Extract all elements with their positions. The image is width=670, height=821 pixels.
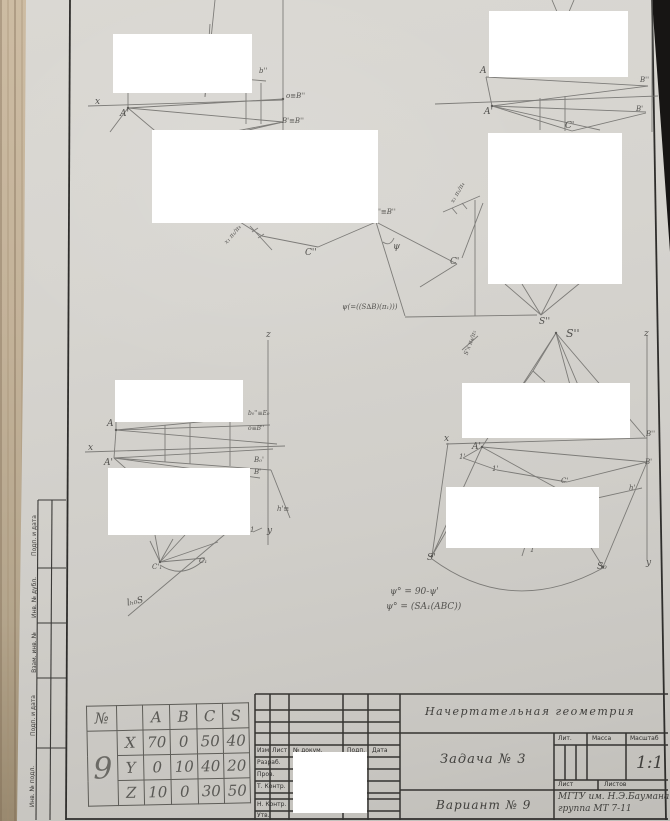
drawing-label: S' xyxy=(427,554,436,563)
table-value-cell: 50 xyxy=(197,728,224,754)
drawing-label: o≡B'' xyxy=(248,426,264,432)
drawing-label: C₁ xyxy=(199,558,207,565)
drawing-label: C' xyxy=(450,258,459,267)
organization-line1: МГТУ им. Н.Э.Баумана xyxy=(558,793,669,802)
table-axis-cell: X xyxy=(117,730,144,756)
drawing-label: 1' xyxy=(459,454,465,461)
stamp-column-grid xyxy=(36,500,66,820)
redaction-box xyxy=(108,468,250,535)
table-value-cell: 0 xyxy=(144,754,172,780)
stamp-cell-label: Инв. № дубл. xyxy=(31,577,38,618)
listov-header: Листов xyxy=(604,782,626,788)
axis-label: x xyxy=(444,435,449,444)
drawing-label: C'₁ xyxy=(152,564,162,571)
drawing-label: S₀ xyxy=(597,563,607,572)
drawing-label: 1' xyxy=(492,466,498,473)
table-number-header: № xyxy=(86,706,117,732)
drawing-label: B' xyxy=(636,106,643,113)
masshtab-header: Масштаб xyxy=(630,736,659,742)
task-title: Задача № 3 xyxy=(440,753,527,766)
stamp-cell-label: Подп. и дата xyxy=(30,695,37,736)
drawing-label: x xyxy=(95,98,100,107)
organization-line2: группа МТ 7-11 xyxy=(558,805,632,814)
redaction-box xyxy=(293,752,367,813)
drawing-label: A' xyxy=(120,110,129,119)
drawing-label: C' xyxy=(561,478,568,485)
drawing-label: B'' xyxy=(640,77,649,84)
drawing-label: A' xyxy=(472,443,481,452)
drawing-label: B' xyxy=(645,459,652,466)
lit-header: Лит. xyxy=(558,736,572,742)
drawing-label: h'≡ xyxy=(277,506,289,513)
scale-value: 1:1 xyxy=(636,755,663,772)
photo-scene: x A' b'' o≡B'' B'≡B'' x₁ π₁/π₄ C'' A''≡B… xyxy=(0,0,670,821)
axis-label: y xyxy=(267,527,272,536)
title-block-razrab: Разраб. xyxy=(257,760,281,766)
angle-label: ψ xyxy=(393,243,400,252)
stamp-cell-label: Инв. № подл. xyxy=(29,766,36,807)
table-value-cell: 40 xyxy=(197,753,224,779)
table-col-header: B xyxy=(169,704,197,730)
variant-number-cell: 9 xyxy=(87,731,119,807)
title-block-col-list: Лист xyxy=(272,748,287,754)
drawing-label: B'' xyxy=(646,431,655,438)
table-value-cell: 0 xyxy=(171,779,199,805)
drawing-label: B'≡B'' xyxy=(282,118,304,125)
redaction-box xyxy=(489,11,628,77)
table-col-header: A xyxy=(142,704,170,730)
drawing-label: C'' xyxy=(305,249,317,258)
coordinate-table: № A B C S 9 X 70 0 50 40 Y 0 10 40 20 Z … xyxy=(86,702,251,806)
redaction-box xyxy=(113,34,252,93)
redaction-box xyxy=(152,130,378,223)
drawing-label: A' xyxy=(104,459,113,468)
drawing-label: A xyxy=(107,420,114,429)
drawing-label: B' xyxy=(254,469,261,476)
formula: ψ° = (SA₁(ABC)) xyxy=(386,603,461,612)
table-value-cell: 10 xyxy=(144,779,172,805)
redaction-box xyxy=(115,380,243,422)
drawing-label: A' xyxy=(484,108,493,117)
axis-label: y xyxy=(646,559,651,568)
table-axis-cell: Y xyxy=(118,755,145,781)
subject-title: Начертательная геометрия xyxy=(425,706,635,717)
drawing-label: B₀' xyxy=(254,457,264,464)
drawing-label: 1 xyxy=(530,547,534,554)
massa-header: Масса xyxy=(592,736,611,742)
title-block-tkontr: Т. Контр. xyxy=(257,784,286,790)
drawing-label: b₀''≡E₀ xyxy=(248,411,269,417)
axis-label: x xyxy=(88,444,93,453)
axis-label: z xyxy=(644,330,649,339)
table-col-header: S xyxy=(222,703,249,729)
table-value-cell: 70 xyxy=(143,729,171,755)
drawing-label: S'' xyxy=(566,328,580,339)
title-block-utv: Утв. xyxy=(257,813,270,819)
table-value-cell: 50 xyxy=(224,778,251,804)
drawing-label: A xyxy=(480,67,487,76)
table-blank-header xyxy=(116,705,143,731)
table-value-cell: 20 xyxy=(223,753,250,779)
stamp-cell-label: Взам. инв. № xyxy=(31,632,38,673)
redaction-box xyxy=(446,487,599,548)
list-header: Лист xyxy=(558,782,573,788)
stamp-cell-label: Подп. и дата xyxy=(31,515,38,556)
drawing-label: 1 xyxy=(250,527,254,534)
variant-title: Вариант № 9 xyxy=(436,799,531,811)
title-block-nkontr: Н. Контр. xyxy=(257,802,286,808)
drawing-label: h' xyxy=(629,485,635,492)
axis-label: z xyxy=(266,331,271,340)
drawing-label: o≡B'' xyxy=(286,93,305,100)
table-value-cell: 10 xyxy=(170,754,198,780)
table-value-cell: 40 xyxy=(223,728,250,754)
table-value-cell: 0 xyxy=(170,729,198,755)
formula: ψ(=((S∆B)(π₁))) xyxy=(342,304,397,311)
title-block-col-izm: Изм. xyxy=(257,748,271,754)
table-axis-cell: Z xyxy=(118,780,145,806)
title-block-prov: Пров. xyxy=(257,772,274,778)
drawing-label: C' xyxy=(565,122,574,131)
table-col-header: C xyxy=(196,703,223,729)
table-value-cell: 30 xyxy=(198,778,225,804)
formula: ψ° = 90-ψ' xyxy=(390,588,439,597)
drawing-label: S'' xyxy=(539,318,550,327)
drawing-label: b'' xyxy=(259,68,267,75)
redaction-box xyxy=(462,383,630,438)
title-block-col-data: Дата xyxy=(372,748,388,754)
redaction-box xyxy=(488,133,622,284)
